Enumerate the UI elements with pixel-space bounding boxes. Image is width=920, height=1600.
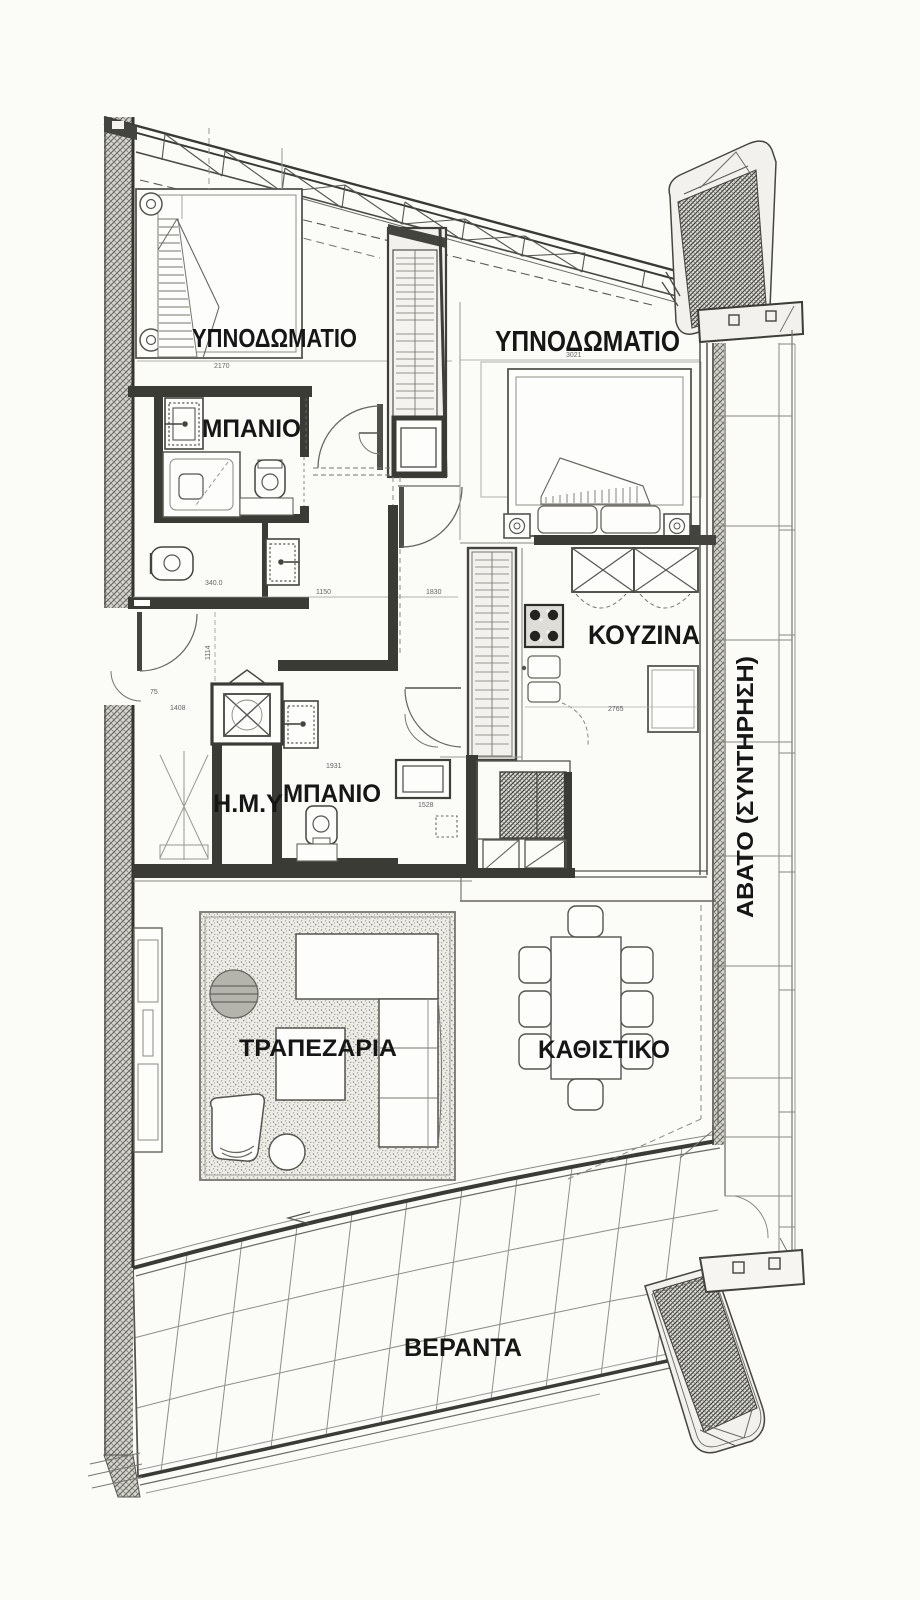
svg-text:1150: 1150 (316, 589, 331, 596)
svg-text:75: 75 (150, 689, 158, 696)
svg-text:ΥΠΝΟΔΩΜΑΤΙΟ: ΥΠΝΟΔΩΜΑΤΙΟ (495, 326, 680, 358)
svg-text:ΤΡΑΠΕΖΑΡΙΑ: ΤΡΑΠΕΖΑΡΙΑ (239, 1035, 397, 1062)
svg-text:ΚΟΥΖΙΝΑ: ΚΟΥΖΙΝΑ (588, 620, 700, 650)
svg-text:1408: 1408 (170, 705, 186, 712)
svg-text:Η.Μ.Υ: Η.Μ.Υ (213, 790, 283, 818)
svg-text:2170: 2170 (214, 363, 230, 370)
svg-text:ΜΠΑΝΙΟ: ΜΠΑΝΙΟ (202, 415, 301, 443)
svg-text:1931: 1931 (326, 763, 342, 770)
svg-text:ΥΠΝΟΔΩΜΑΤΙΟ: ΥΠΝΟΔΩΜΑΤΙΟ (192, 323, 357, 353)
svg-text:1528: 1528 (418, 802, 434, 809)
svg-text:ΜΠΑΝΙΟ: ΜΠΑΝΙΟ (283, 780, 381, 808)
svg-text:ΚΑΘΙΣΤΙΚΟ: ΚΑΘΙΣΤΙΚΟ (538, 1036, 670, 1064)
svg-text:2765: 2765 (608, 706, 624, 713)
svg-text:3021: 3021 (566, 352, 582, 359)
svg-text:ΒΕΡΑΝΤΑ: ΒΕΡΑΝΤΑ (404, 1334, 522, 1362)
svg-text:ΑΒΑΤΟ (ΣΥΝΤΗΡΗΣΗ): ΑΒΑΤΟ (ΣΥΝΤΗΡΗΣΗ) (732, 656, 758, 918)
svg-text:1114: 1114 (205, 645, 212, 660)
svg-text:340.0: 340.0 (205, 580, 223, 587)
svg-text:1830: 1830 (426, 589, 442, 596)
